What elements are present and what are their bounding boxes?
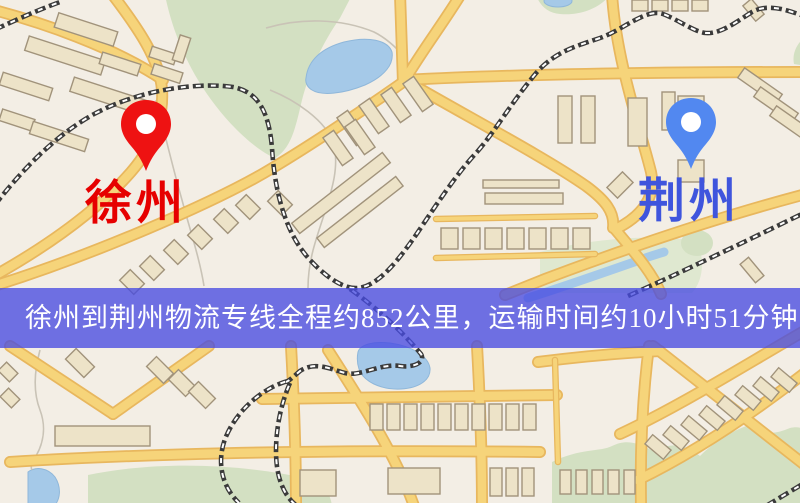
origin-label: 徐州 — [84, 178, 187, 230]
map-screenshot: 徐州 荆州 徐州到荆州物流专线全程约852公里，运输时间约10小时51分钟. — [0, 0, 800, 503]
pin-hole — [136, 114, 156, 134]
banner-text: 徐州到荆州物流专线全程约852公里，运输时间约10小时51分钟. — [0, 288, 800, 348]
destination-label: 荆州 — [638, 176, 740, 228]
map-canvas[interactable]: 徐州 荆州 — [0, 0, 800, 503]
pin-hole — [681, 112, 701, 132]
info-banner: 徐州到荆州物流专线全程约852公里，运输时间约10小时51分钟. — [0, 288, 800, 348]
